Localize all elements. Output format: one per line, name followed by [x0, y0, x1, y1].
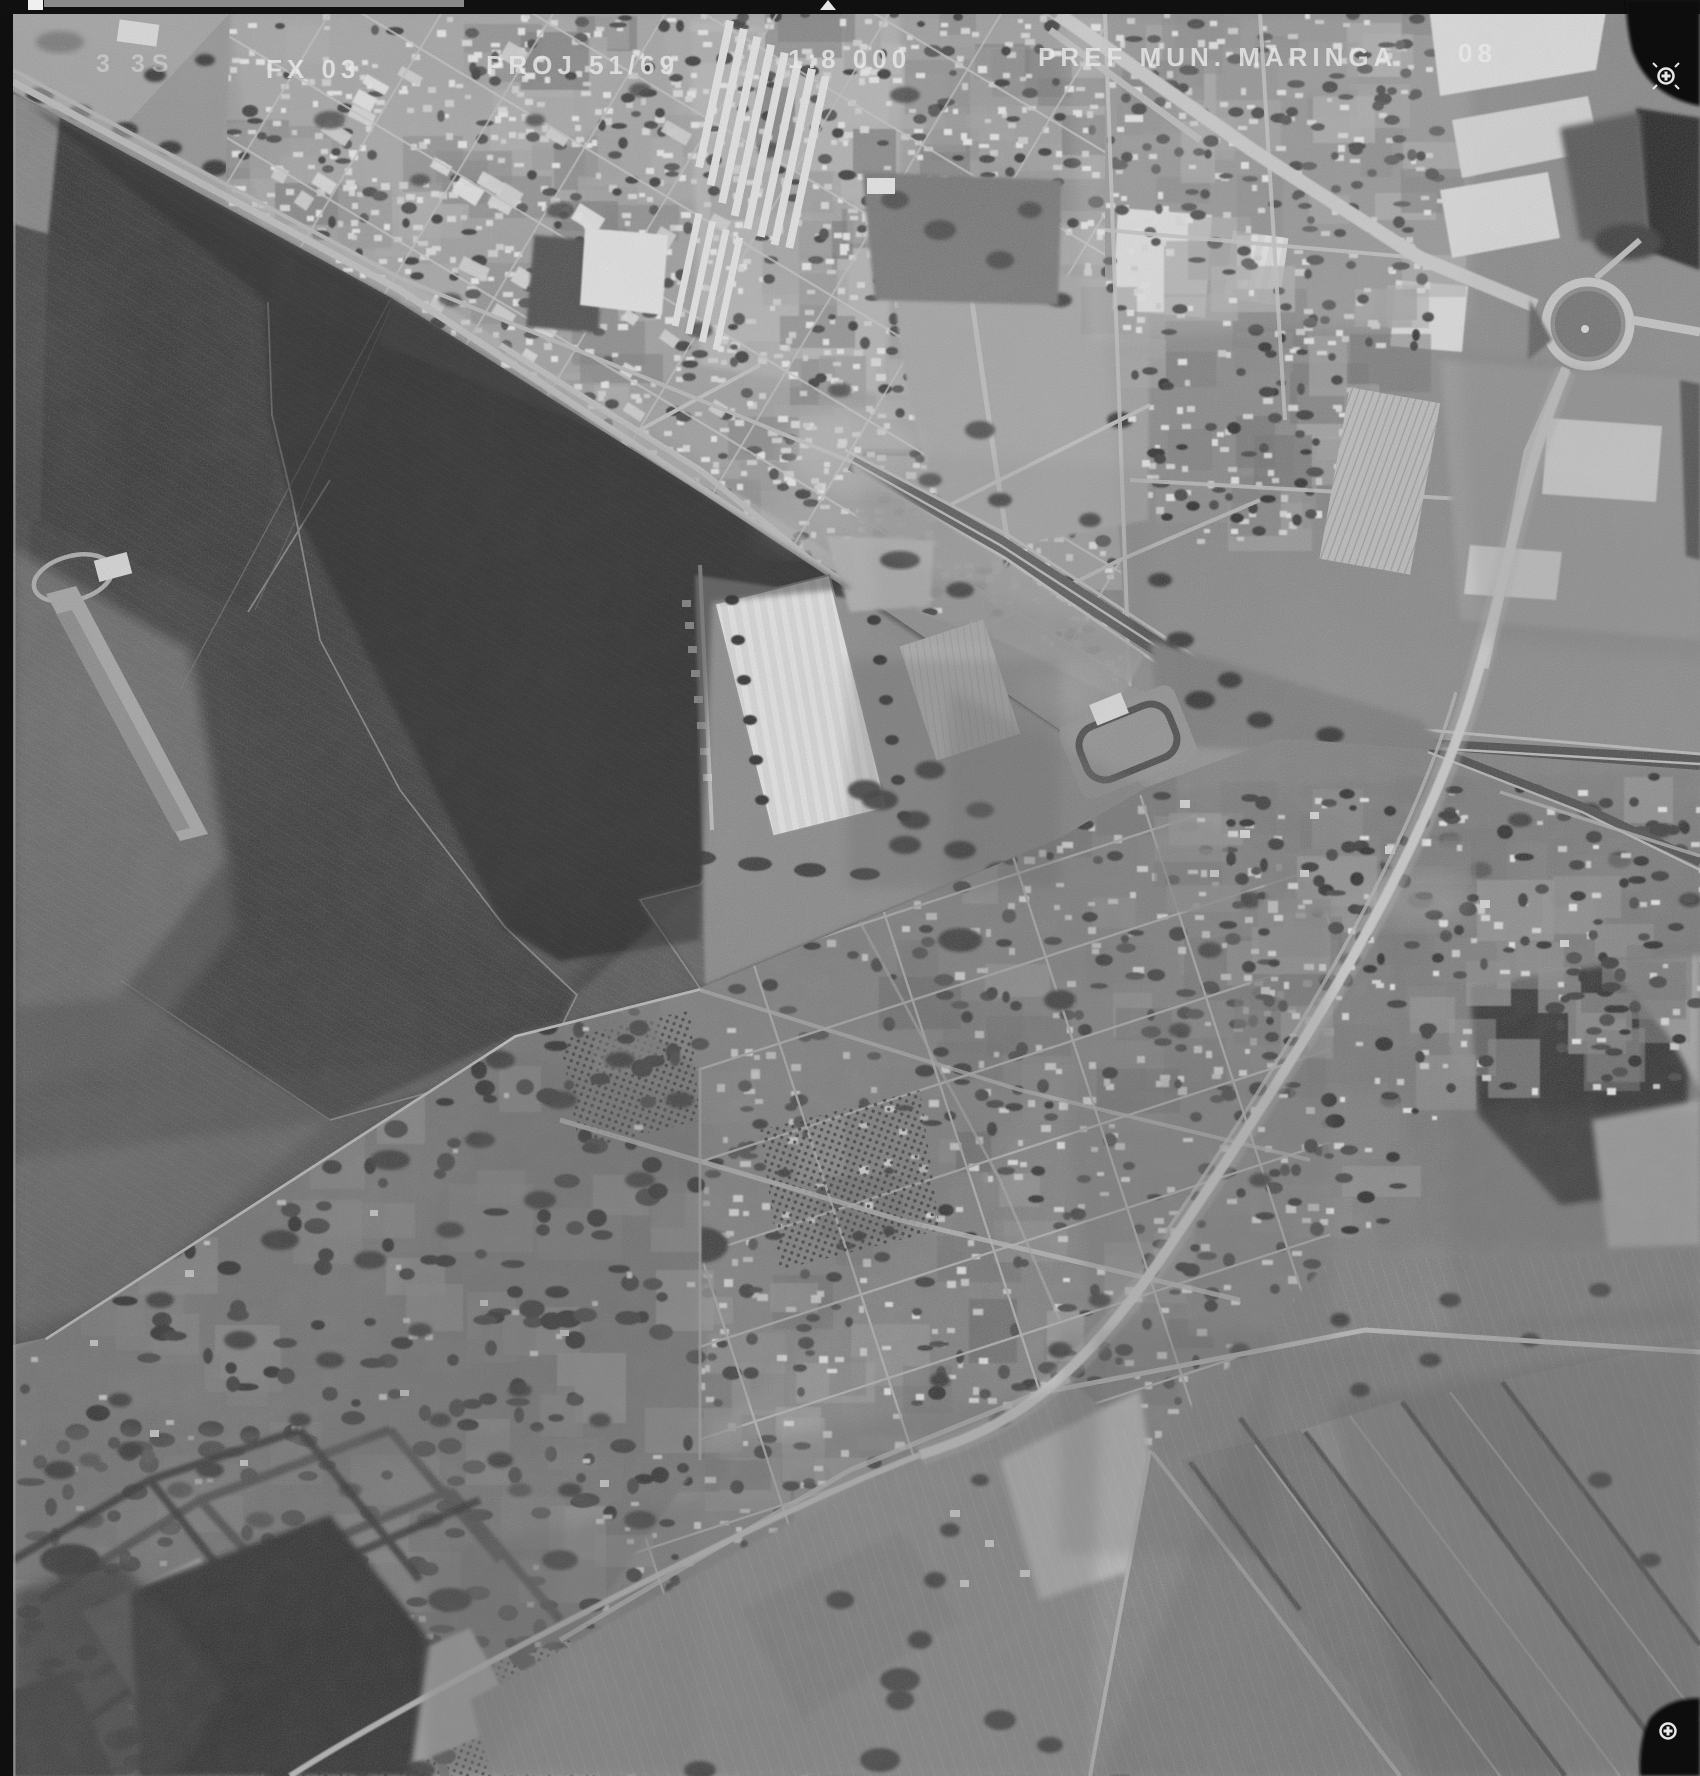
svg-text:08: 08 — [1458, 38, 1497, 68]
svg-text:PROJ 51/69: PROJ 51/69 — [486, 50, 679, 80]
svg-text:1:8 000: 1:8 000 — [788, 44, 911, 74]
svg-text:FX 03: FX 03 — [266, 54, 360, 84]
svg-text:3 3S: 3 3S — [96, 50, 175, 78]
svg-text:PREF MUN. MARINGA: PREF MUN. MARINGA — [1038, 42, 1397, 72]
